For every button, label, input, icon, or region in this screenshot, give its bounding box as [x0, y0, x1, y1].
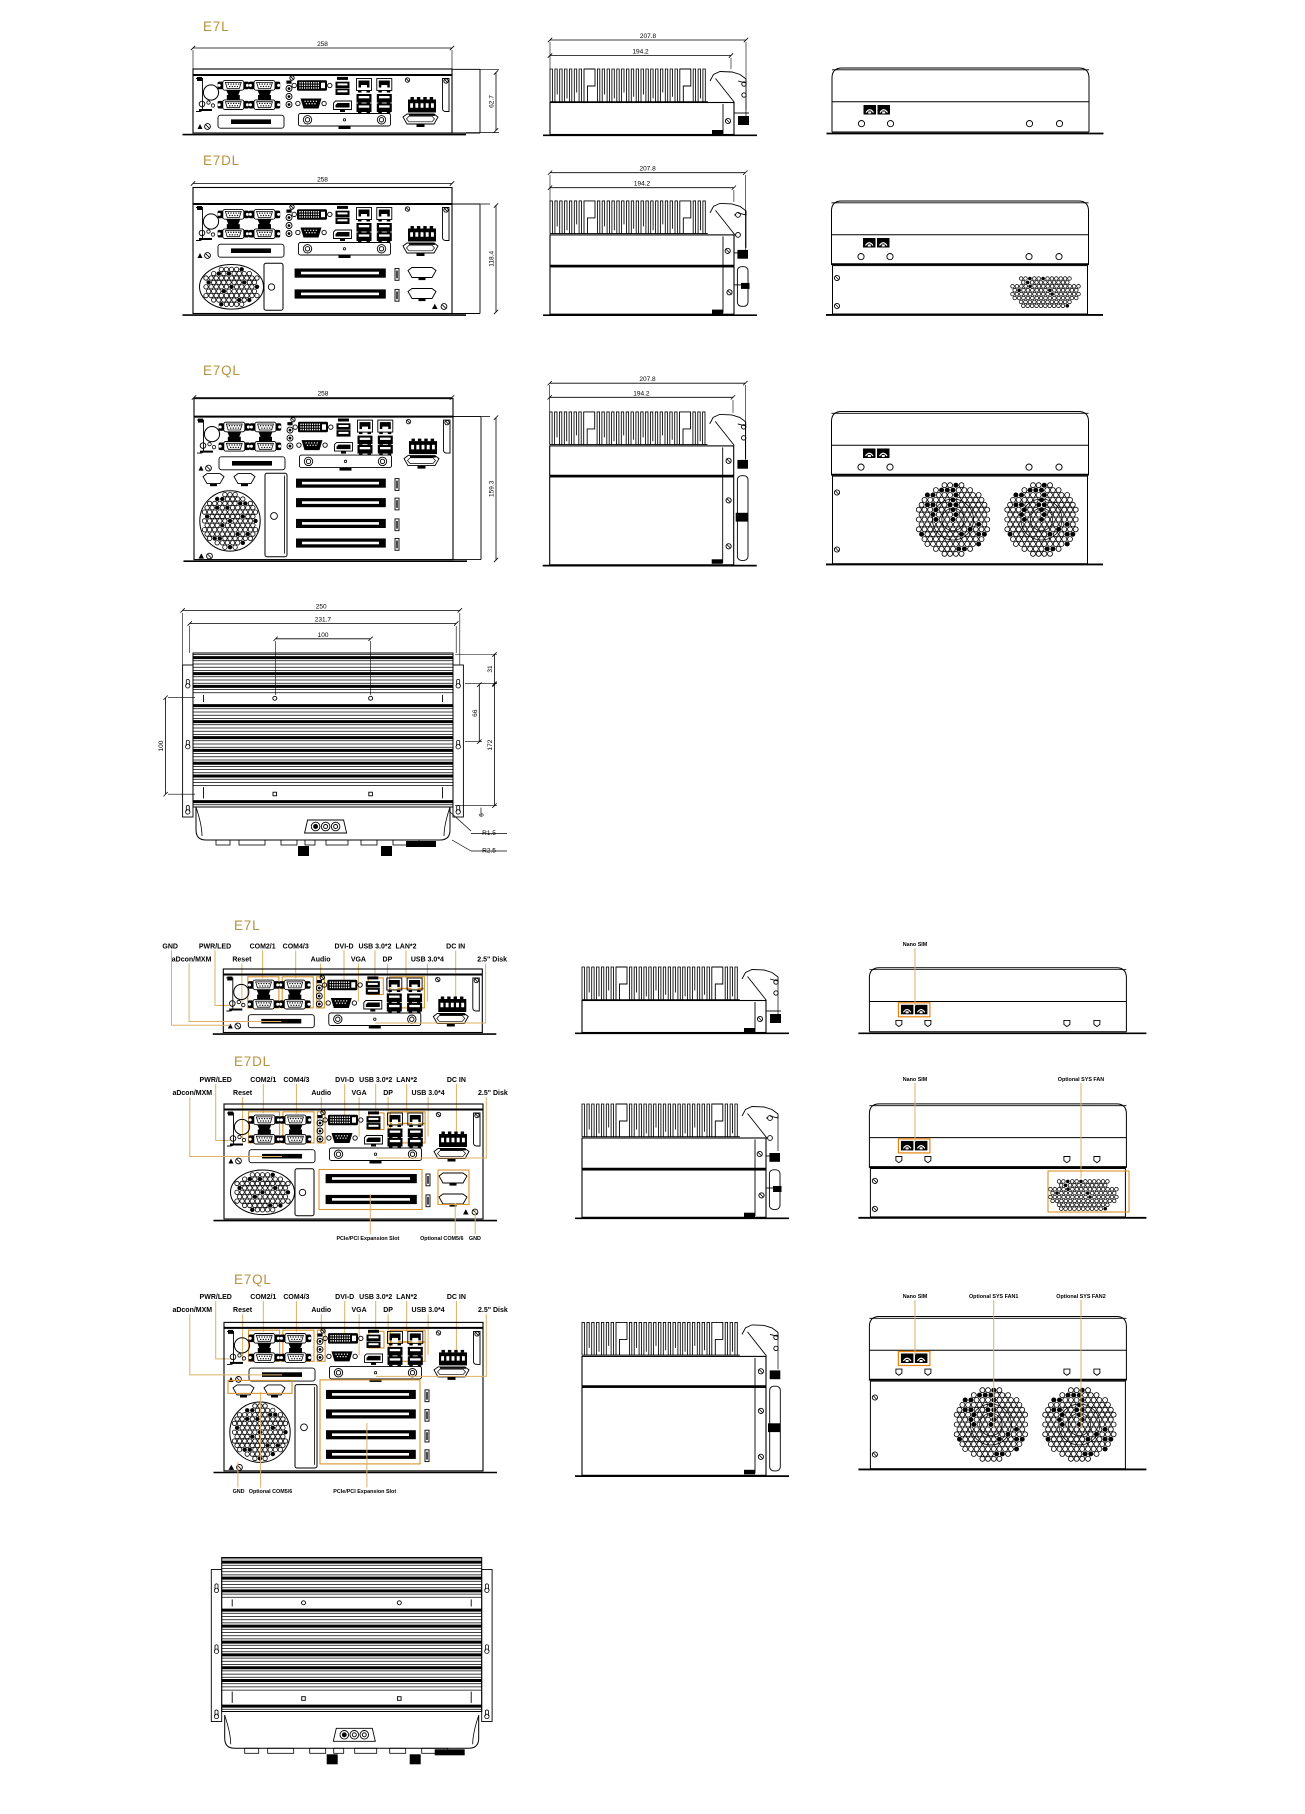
svg-text:E7L: E7L — [203, 19, 229, 34]
svg-text:aDcon/MXM: aDcon/MXM — [172, 957, 212, 964]
svg-text:DP: DP — [383, 1307, 393, 1314]
svg-text:LAN*2: LAN*2 — [396, 1294, 417, 1301]
svg-text:PCIe/PCI Expansion Slot: PCIe/PCI Expansion Slot — [333, 1489, 396, 1495]
svg-text:258: 258 — [318, 391, 329, 398]
svg-text:Reset: Reset — [232, 957, 252, 964]
svg-text:E7DL: E7DL — [234, 1054, 271, 1069]
svg-text:PWR/LED: PWR/LED — [200, 1294, 232, 1301]
svg-text:258: 258 — [317, 41, 328, 48]
svg-text:GND: GND — [469, 1236, 481, 1242]
svg-text:Audio: Audio — [311, 957, 331, 964]
svg-text:USB 3.0*2: USB 3.0*2 — [359, 1294, 392, 1301]
svg-text:Nano SIM: Nano SIM — [903, 942, 928, 948]
svg-text:Audio: Audio — [311, 1307, 331, 1314]
svg-text:COM4/3: COM4/3 — [283, 1077, 309, 1084]
svg-text:118.4: 118.4 — [489, 251, 496, 267]
svg-text:100: 100 — [318, 632, 329, 639]
svg-text:COM2/1: COM2/1 — [250, 1077, 276, 1084]
svg-text:250: 250 — [316, 603, 327, 610]
svg-text:E7DL: E7DL — [203, 153, 240, 168]
svg-text:31: 31 — [487, 665, 494, 673]
svg-text:USB 3.0*4: USB 3.0*4 — [412, 1090, 445, 1097]
svg-text:207.8: 207.8 — [639, 376, 656, 383]
svg-text:LAN*2: LAN*2 — [395, 943, 416, 950]
svg-text:DP: DP — [383, 1090, 393, 1097]
svg-text:E7QL: E7QL — [203, 363, 241, 378]
svg-text:DVI-D: DVI-D — [335, 1294, 354, 1301]
svg-text:Nano SIM: Nano SIM — [903, 1294, 928, 1300]
svg-text:aDcon/MXM: aDcon/MXM — [172, 1307, 212, 1314]
svg-text:194.2: 194.2 — [633, 390, 650, 397]
svg-text:194.2: 194.2 — [632, 49, 649, 56]
svg-text:Nano SIM: Nano SIM — [903, 1077, 928, 1083]
svg-text:159.3: 159.3 — [489, 480, 496, 497]
svg-text:DC IN: DC IN — [447, 1294, 466, 1301]
svg-text:E7L: E7L — [234, 918, 260, 933]
svg-text:COM2/1: COM2/1 — [250, 943, 276, 950]
svg-text:COM4/3: COM4/3 — [283, 1294, 309, 1301]
svg-text:DC IN: DC IN — [447, 1077, 466, 1084]
svg-text:207.8: 207.8 — [639, 166, 656, 173]
svg-text:USB 3.0*4: USB 3.0*4 — [412, 1307, 445, 1314]
svg-text:207.8: 207.8 — [640, 33, 657, 40]
svg-text:231.7: 231.7 — [315, 617, 332, 624]
svg-text:aDcon/MXM: aDcon/MXM — [172, 1090, 212, 1097]
svg-text:USB 3.0*2: USB 3.0*2 — [358, 943, 391, 950]
svg-text:2.5" Disk: 2.5" Disk — [478, 1307, 508, 1314]
svg-text:DVI-D: DVI-D — [335, 1077, 354, 1084]
svg-text:Optional SYS FAN: Optional SYS FAN — [1058, 1077, 1105, 1083]
svg-text:GND: GND — [233, 1489, 245, 1495]
svg-text:PCIe/PCI Expansion Slot: PCIe/PCI Expansion Slot — [336, 1236, 399, 1242]
svg-text:VGA: VGA — [351, 957, 366, 964]
svg-text:DVI-D: DVI-D — [334, 943, 353, 950]
svg-text:Audio: Audio — [311, 1090, 331, 1097]
svg-text:LAN*2: LAN*2 — [396, 1077, 417, 1084]
svg-text:66: 66 — [472, 709, 479, 717]
svg-text:GND: GND — [162, 943, 178, 950]
svg-text:USB 3.0*4: USB 3.0*4 — [411, 957, 444, 964]
svg-text:Optional COM5/6: Optional COM5/6 — [420, 1236, 463, 1242]
svg-text:Optional SYS FAN2: Optional SYS FAN2 — [1056, 1294, 1105, 1300]
svg-text:Optional SYS FAN1: Optional SYS FAN1 — [969, 1294, 1018, 1300]
svg-text:172: 172 — [487, 739, 494, 750]
svg-text:194.2: 194.2 — [634, 181, 651, 188]
svg-text:Reset: Reset — [233, 1307, 253, 1314]
svg-text:Optional COM5/6: Optional COM5/6 — [249, 1489, 292, 1495]
svg-text:258: 258 — [317, 177, 328, 184]
svg-text:VGA: VGA — [352, 1090, 367, 1097]
svg-text:DP: DP — [383, 957, 393, 964]
svg-text:2.5" Disk: 2.5" Disk — [478, 1090, 508, 1097]
svg-text:PWR/LED: PWR/LED — [199, 943, 231, 950]
svg-text:Reset: Reset — [233, 1090, 253, 1097]
svg-text:62.7: 62.7 — [489, 95, 496, 108]
svg-text:100: 100 — [158, 740, 165, 751]
svg-text:VGA: VGA — [352, 1307, 367, 1314]
svg-text:DC IN: DC IN — [446, 943, 465, 950]
svg-text:COM2/1: COM2/1 — [250, 1294, 276, 1301]
svg-text:COM4/3: COM4/3 — [283, 943, 309, 950]
svg-text:PWR/LED: PWR/LED — [200, 1077, 232, 1084]
svg-text:2.5" Disk: 2.5" Disk — [477, 957, 507, 964]
svg-text:USB 3.0*2: USB 3.0*2 — [359, 1077, 392, 1084]
svg-text:6: 6 — [479, 813, 486, 817]
svg-text:E7QL: E7QL — [234, 1272, 272, 1287]
